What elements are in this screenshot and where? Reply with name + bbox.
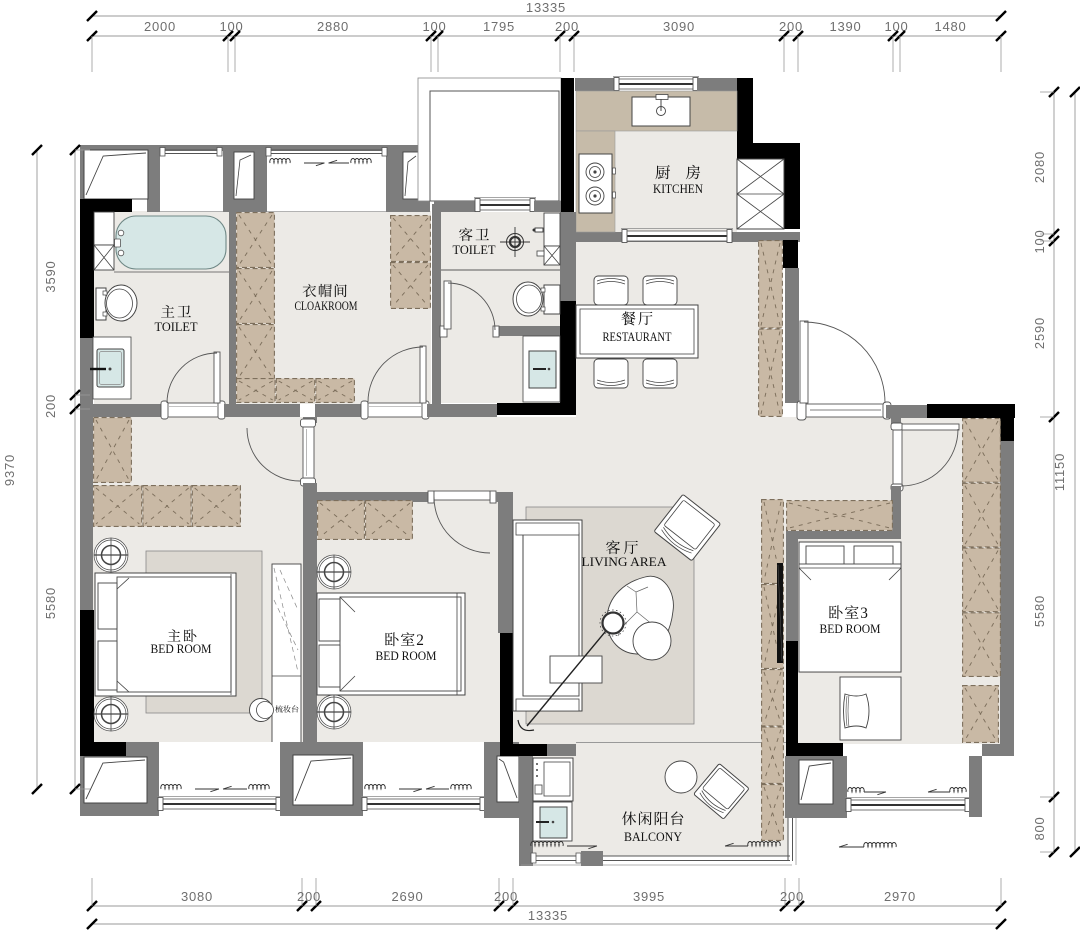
svg-text:2590: 2590	[1032, 317, 1047, 349]
svg-text:TOILET: TOILET	[453, 243, 496, 257]
svg-text:3080: 3080	[181, 889, 213, 904]
svg-text:13335: 13335	[526, 0, 566, 15]
svg-text:2080: 2080	[1032, 151, 1047, 183]
svg-text:1390: 1390	[829, 19, 861, 34]
svg-text:200: 200	[43, 394, 58, 418]
svg-text:2880: 2880	[317, 19, 349, 34]
svg-text:3995: 3995	[633, 889, 665, 904]
svg-text:1795: 1795	[483, 19, 515, 34]
svg-text:3: 3	[860, 605, 868, 622]
svg-text:2690: 2690	[391, 889, 423, 904]
svg-text:200: 200	[555, 19, 579, 34]
svg-text:100: 100	[1032, 229, 1047, 253]
svg-text:TOILET: TOILET	[155, 320, 198, 334]
svg-text:11150: 11150	[1052, 453, 1067, 491]
svg-text:CLOAKROOM: CLOAKROOM	[295, 299, 358, 313]
svg-text:LIVING AREA: LIVING AREA	[582, 555, 667, 569]
svg-text:200: 200	[297, 889, 321, 904]
svg-text:2000: 2000	[144, 19, 176, 34]
svg-text:2970: 2970	[884, 889, 916, 904]
svg-text:5580: 5580	[43, 587, 58, 619]
svg-text:RESTAURANT: RESTAURANT	[603, 330, 672, 344]
svg-text:200: 200	[779, 19, 803, 34]
svg-text:200: 200	[494, 889, 518, 904]
svg-text:BED ROOM: BED ROOM	[151, 642, 212, 656]
svg-text:BALCONY: BALCONY	[624, 830, 682, 844]
svg-text:2: 2	[416, 632, 424, 649]
svg-text:3590: 3590	[43, 260, 58, 292]
svg-text:200: 200	[780, 889, 804, 904]
svg-text:KITCHEN: KITCHEN	[653, 182, 703, 196]
svg-text:3090: 3090	[663, 19, 695, 34]
svg-text:1480: 1480	[934, 19, 966, 34]
svg-text:800: 800	[1032, 816, 1047, 840]
svg-text:BED ROOM: BED ROOM	[820, 622, 881, 636]
svg-text:9370: 9370	[2, 454, 17, 486]
svg-text:BED ROOM: BED ROOM	[376, 649, 437, 663]
svg-text:13335: 13335	[528, 908, 568, 923]
svg-text:5580: 5580	[1032, 595, 1047, 627]
